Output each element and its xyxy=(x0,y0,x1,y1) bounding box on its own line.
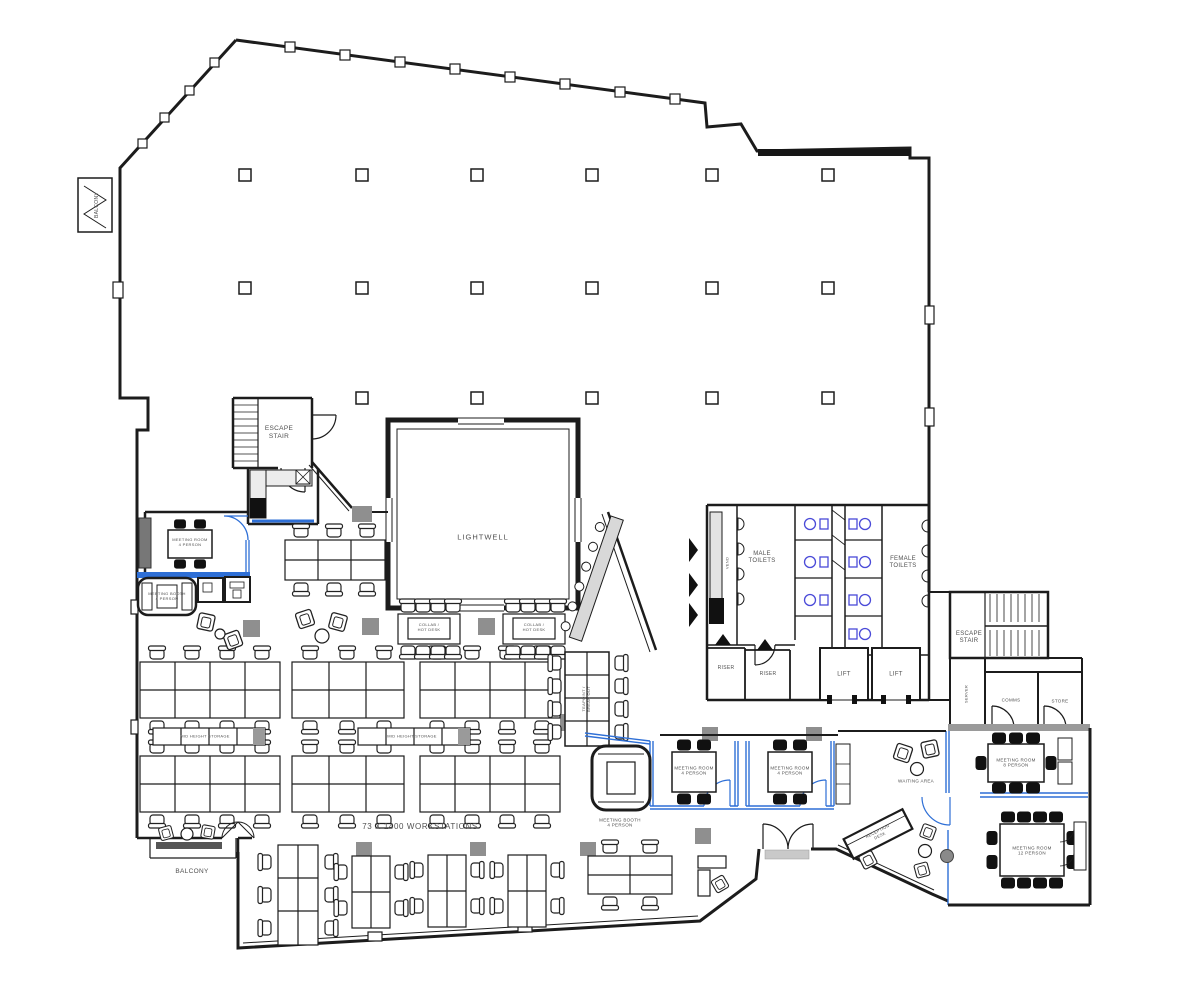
label-riser-2: RISER xyxy=(760,671,777,677)
label-comms: COMMS xyxy=(1002,697,1021,702)
label-meeting-room-4-c1: MEETING ROOM 4 PERSON xyxy=(674,766,713,777)
label-server: SERVER xyxy=(965,685,970,703)
label-collab-1: COLLAB / HOT DESK xyxy=(418,623,441,633)
meeting-room-12 xyxy=(914,812,1090,906)
label-balcony-bottom: BALCONY xyxy=(175,868,208,876)
waiting-area xyxy=(893,740,940,776)
label-meeting-booth-4-left: MEETING BOOTH 4 PERSON xyxy=(148,592,185,602)
label-meeting-room-12: MEETING ROOM 12 PERSON xyxy=(1012,846,1051,857)
label-lift-1: LIFT xyxy=(837,671,851,678)
label-vend: VEND xyxy=(726,557,731,569)
label-riser-1: RISER xyxy=(718,665,735,671)
meeting-booth-centre xyxy=(592,746,650,810)
label-storage-2: MID HEIGHT STORAGE xyxy=(387,735,436,740)
label-meeting-room-4-left: MEETING ROOM 4 PERSON xyxy=(172,538,207,548)
wc-fixtures xyxy=(805,519,871,640)
label-workstations-note: 73 X 1400 WORKSTATIONS xyxy=(362,822,478,832)
workstation-banks-lower xyxy=(258,840,729,945)
floor-plan-drawing xyxy=(0,0,1200,989)
label-balcony-top: BALCONY xyxy=(94,192,100,218)
label-escape-stair-left: ESCAPE STAIR xyxy=(265,425,293,441)
label-meeting-room-8: MEETING ROOM 8 PERSON xyxy=(996,758,1035,769)
floor-plan-canvas: BALCONY ESCAPE STAIR LIGHTWELL COLLAB / … xyxy=(0,0,1200,989)
label-female-toilets: FEMALE TOILETS xyxy=(890,556,917,570)
label-collab-2: COLLAB / HOT DESK xyxy=(523,623,546,633)
phone-booths xyxy=(198,577,250,602)
lift-shafts xyxy=(820,648,920,704)
meeting-room-8 xyxy=(922,731,1088,825)
label-storage-1: MID HEIGHT STORAGE xyxy=(180,735,229,740)
label-store: STORE xyxy=(1052,698,1069,703)
label-teapoint: TEAPOINT / BREAK OUT xyxy=(582,686,592,712)
label-meeting-room-4-c2: MEETING ROOM 4 PERSON xyxy=(770,766,809,777)
escape-stair-right xyxy=(950,592,1048,658)
lightwell xyxy=(384,416,582,612)
lounge-seating xyxy=(197,609,348,650)
column-grid xyxy=(239,169,834,404)
label-male-toilets: MALE TOILETS xyxy=(749,551,776,565)
label-meeting-booth-centre: MEETING BOOTH 4 PERSON xyxy=(599,818,641,829)
teapoint-kitchenette xyxy=(248,462,388,524)
label-lightwell: LIGHTWELL xyxy=(457,533,509,542)
label-lift-2: LIFT xyxy=(889,671,903,678)
label-waiting-area: WAITING AREA xyxy=(898,778,934,783)
label-escape-stair-right: ESCAPE STAIR xyxy=(956,631,982,645)
